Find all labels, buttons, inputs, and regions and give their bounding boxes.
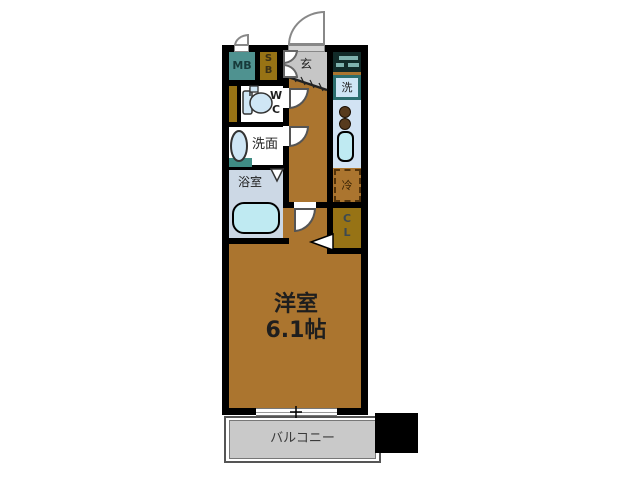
meter-box-label: MB: [229, 52, 255, 80]
toilet-icon: [243, 86, 272, 114]
washer-label: 洗: [336, 78, 358, 97]
door-swing-triangle-icon: [311, 234, 333, 250]
closet-label-c: C: [337, 212, 357, 226]
folding-door-v-icon: [271, 169, 283, 181]
bathroom-label: 浴室: [234, 174, 266, 191]
shoe-box-label-b: B: [260, 65, 277, 78]
main-room-name: 洋室: [240, 292, 352, 318]
fridge-label: 冷: [336, 177, 358, 195]
wc-label-w: W: [270, 89, 282, 103]
washroom-label: 洗面: [248, 136, 282, 154]
balcony-label: バルコニー: [240, 428, 365, 450]
floor-plan: MB S B 玄 洗 W C 洗面 浴室 冷 C L 洋室 6.1帖 バルコニー: [0, 0, 640, 480]
sink-oval-icon: [231, 131, 247, 161]
meter-box-door-leaf: [234, 45, 249, 52]
main-room-size: 6.1帖: [240, 318, 352, 344]
entrance-label: 玄: [291, 54, 321, 74]
window-center-tick: [290, 406, 302, 418]
bathtub-icon: [233, 203, 279, 233]
closet-label-l: L: [337, 226, 357, 240]
wc-label-c: C: [270, 103, 282, 117]
